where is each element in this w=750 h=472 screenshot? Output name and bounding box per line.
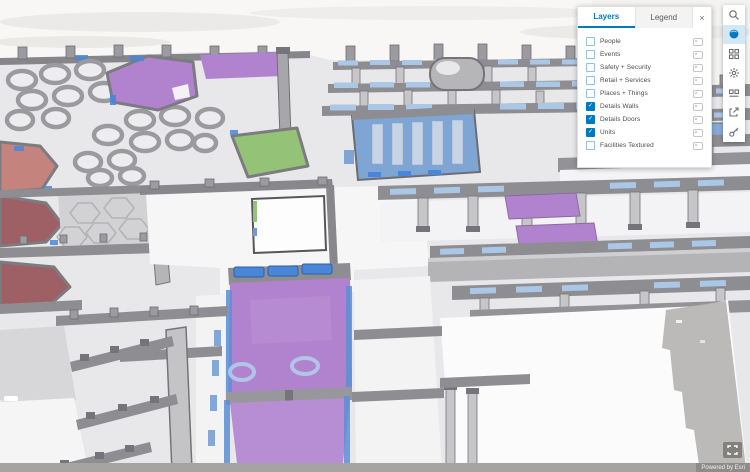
layer-checkbox[interactable] bbox=[586, 89, 595, 98]
gear-icon bbox=[728, 67, 740, 79]
attribution-text: Powered by Esri bbox=[696, 463, 750, 472]
basemap-gallery-button[interactable] bbox=[723, 44, 745, 64]
layer-row-people[interactable]: People bbox=[586, 35, 703, 48]
search-icon bbox=[728, 9, 740, 21]
layer-options-icon[interactable] bbox=[693, 103, 703, 111]
layer-label: Facilities Textured bbox=[600, 142, 654, 149]
measure-button[interactable] bbox=[723, 83, 745, 103]
layer-checkbox[interactable] bbox=[586, 37, 595, 46]
panel-tabs: Layers Legend × bbox=[578, 7, 711, 28]
globe-icon bbox=[728, 28, 740, 40]
layer-options-icon[interactable] bbox=[693, 51, 703, 59]
layer-options-icon[interactable] bbox=[693, 77, 703, 85]
layer-checkbox[interactable]: ✓ bbox=[586, 102, 595, 111]
search-button[interactable] bbox=[723, 5, 745, 25]
layer-options-icon[interactable] bbox=[693, 90, 703, 98]
layer-checkbox[interactable]: ✓ bbox=[586, 128, 595, 137]
close-icon[interactable]: × bbox=[692, 7, 711, 28]
layer-checkbox[interactable] bbox=[586, 63, 595, 72]
layer-options-icon[interactable] bbox=[693, 142, 703, 150]
layer-options-icon[interactable] bbox=[693, 129, 703, 137]
attribution-bar: Powered by Esri bbox=[0, 463, 750, 472]
unit-blue-complex bbox=[344, 106, 480, 180]
layer-label: Retail + Services bbox=[600, 77, 651, 84]
layers-panel: Layers Legend × People Events Safety + S… bbox=[577, 6, 712, 168]
layer-row-retail-services[interactable]: Retail + Services bbox=[586, 74, 703, 87]
layer-list: People Events Safety + Security Retail +… bbox=[578, 28, 711, 152]
layer-row-facilities-textured[interactable]: Facilities Textured bbox=[586, 139, 703, 152]
widget-toolbar bbox=[723, 5, 745, 142]
layer-checkbox[interactable] bbox=[586, 141, 595, 150]
open-floor-bottom-right bbox=[440, 300, 746, 472]
layer-label: Places + Things bbox=[600, 90, 648, 97]
layer-checkbox[interactable] bbox=[586, 50, 595, 59]
export-icon bbox=[728, 106, 740, 118]
layer-label: Details Walls bbox=[600, 103, 639, 110]
export-button[interactable] bbox=[723, 103, 745, 123]
layer-label: Units bbox=[600, 129, 615, 136]
layer-row-units[interactable]: ✓ Units bbox=[586, 126, 703, 139]
layer-checkbox[interactable] bbox=[586, 76, 595, 85]
layer-checkbox[interactable]: ✓ bbox=[586, 115, 595, 124]
key-button[interactable] bbox=[723, 122, 745, 142]
key-icon bbox=[728, 126, 740, 138]
layer-row-events[interactable]: Events bbox=[586, 48, 703, 61]
settings-button[interactable] bbox=[723, 64, 745, 84]
layer-label: Details Doors bbox=[600, 116, 640, 123]
measure-icon bbox=[728, 87, 740, 99]
layer-options-icon[interactable] bbox=[693, 64, 703, 72]
focus-brackets-icon[interactable] bbox=[723, 442, 742, 458]
layer-label: Events bbox=[600, 51, 620, 58]
layer-label: Safety + Security bbox=[600, 64, 651, 71]
tab-layers[interactable]: Layers bbox=[578, 7, 635, 28]
layer-label: People bbox=[600, 38, 621, 45]
layer-row-places-things[interactable]: Places + Things bbox=[586, 87, 703, 100]
layer-options-icon[interactable] bbox=[693, 116, 703, 124]
grid-icon bbox=[728, 48, 740, 60]
tab-legend[interactable]: Legend bbox=[635, 7, 693, 28]
basemap-globe-button[interactable] bbox=[723, 25, 745, 45]
layer-row-safety-security[interactable]: Safety + Security bbox=[586, 61, 703, 74]
layer-row-details-doors[interactable]: ✓ Details Doors bbox=[586, 113, 703, 126]
layer-options-icon[interactable] bbox=[693, 38, 703, 46]
layer-row-details-walls[interactable]: ✓ Details Walls bbox=[586, 100, 703, 113]
